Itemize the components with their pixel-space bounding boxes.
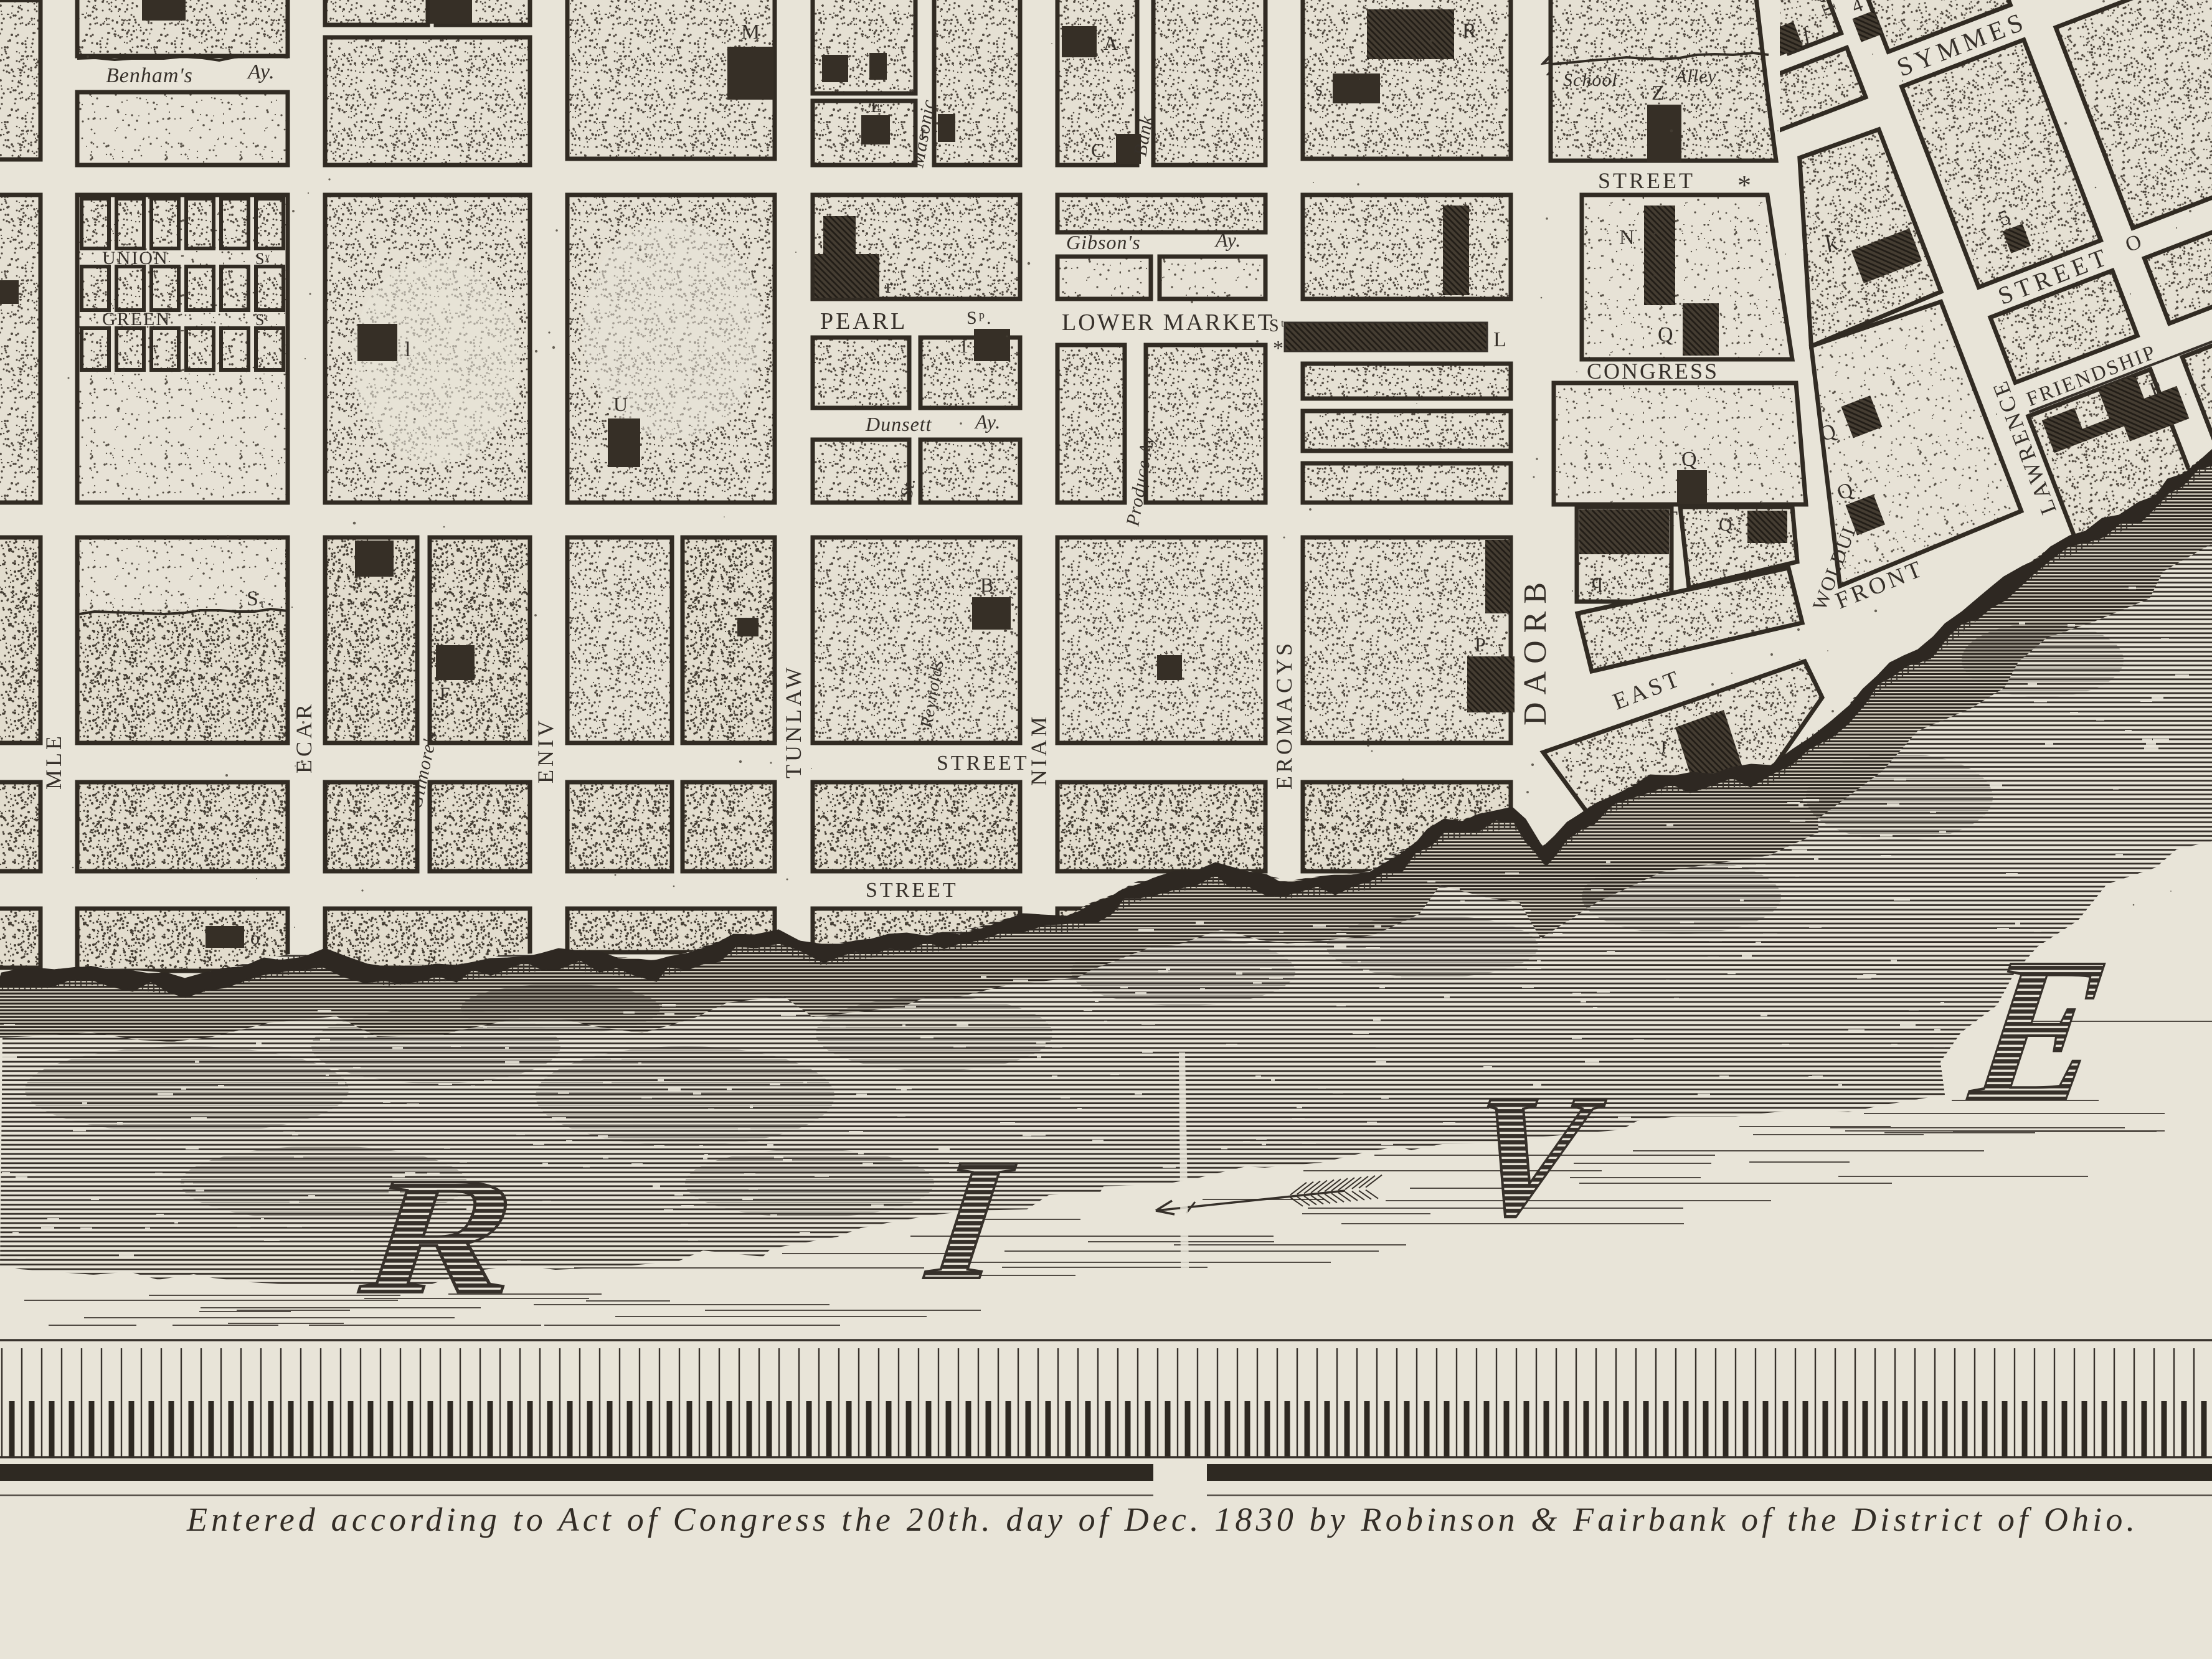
svg-text:MLE: MLE: [41, 733, 66, 790]
svg-text:J: J: [1659, 737, 1668, 758]
svg-text:ECAR: ECAR: [291, 701, 316, 773]
svg-text:ENIV: ENIV: [533, 717, 558, 783]
svg-text:Alley: Alley: [1674, 66, 1717, 87]
svg-text:EROMACYS: EROMACYS: [1272, 640, 1297, 790]
svg-text:PEARL: PEARL: [820, 308, 907, 334]
svg-text:A: A: [1104, 32, 1120, 54]
svg-text:Sᵖ.: Sᵖ.: [967, 308, 993, 328]
svg-text:C: C: [1091, 139, 1106, 161]
svg-text:TUNLAW: TUNLAW: [781, 664, 806, 778]
svg-text:Q: Q: [1719, 514, 1734, 535]
svg-text:o: o: [250, 928, 262, 948]
svg-text:L: L: [1493, 328, 1508, 351]
svg-text:r: r: [886, 275, 894, 297]
svg-text:Gibson's: Gibson's: [1066, 231, 1141, 253]
svg-text:Benham's: Benham's: [106, 64, 193, 87]
svg-text:Sʸ: Sʸ: [255, 250, 270, 268]
svg-text:LOWER MARKET: LOWER MARKET: [1062, 310, 1274, 336]
svg-text:Z: Z: [1652, 82, 1666, 105]
svg-text:NIAM: NIAM: [1026, 714, 1051, 786]
svg-text:Q: Q: [1681, 448, 1699, 471]
svg-text:N: N: [1619, 226, 1637, 249]
svg-text:Sᵗ: Sᵗ: [255, 311, 268, 329]
svg-text:U: U: [613, 393, 630, 415]
svg-text:P: P: [1475, 633, 1488, 656]
svg-text:B: B: [980, 574, 995, 596]
svg-text:E: E: [871, 96, 884, 116]
svg-text:M: M: [741, 21, 762, 44]
svg-text:STREET: STREET: [866, 879, 958, 902]
svg-text:School: School: [1563, 70, 1618, 90]
svg-text:STREET: STREET: [1598, 168, 1695, 193]
svg-text:St.: St.: [897, 476, 919, 499]
svg-text:Ay.: Ay.: [974, 410, 1001, 433]
svg-text:STREET: STREET: [937, 752, 1029, 775]
svg-text:*: *: [1273, 337, 1285, 360]
svg-text:Ay.: Ay.: [1214, 229, 1241, 251]
svg-text:CONGRESS: CONGRESS: [1587, 359, 1719, 384]
svg-text:GREEN: GREEN: [102, 309, 171, 329]
svg-text:UNION: UNION: [102, 248, 169, 268]
svg-text:DAORB: DAORB: [1518, 575, 1553, 726]
svg-text:Sᵗ: Sᵗ: [1269, 316, 1286, 336]
svg-text:Sᵣ.: Sᵣ.: [247, 587, 274, 610]
svg-text:1: 1: [959, 336, 970, 357]
svg-text:Ay.: Ay.: [247, 60, 275, 83]
svg-text:Dunsett: Dunsett: [865, 413, 932, 435]
svg-text:q: q: [1592, 570, 1604, 593]
svg-text:s: s: [1315, 78, 1325, 99]
svg-text:R: R: [1462, 19, 1478, 42]
svg-text:l: l: [405, 338, 412, 361]
svg-text:F: F: [440, 684, 452, 704]
svg-text:Q: Q: [1658, 323, 1675, 346]
